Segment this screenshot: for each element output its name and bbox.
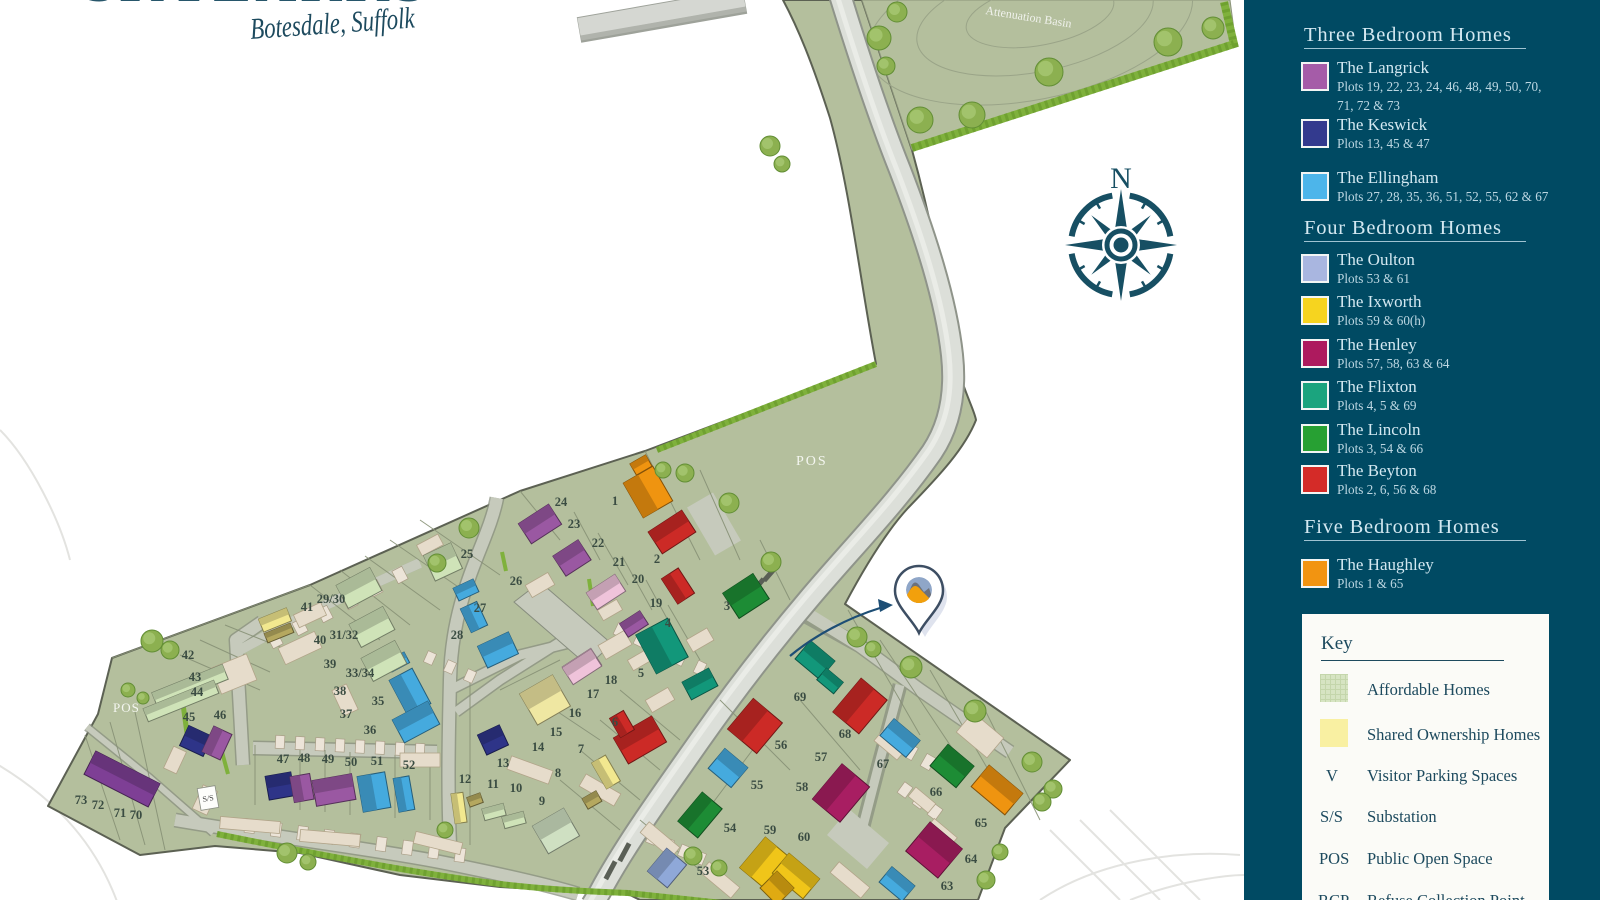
- svg-text:16: 16: [569, 706, 582, 720]
- svg-text:64: 64: [965, 852, 978, 866]
- svg-text:33/34: 33/34: [346, 666, 375, 680]
- svg-text:45: 45: [183, 710, 196, 724]
- svg-text:60: 60: [798, 830, 811, 844]
- svg-text:28: 28: [451, 628, 464, 642]
- svg-text:POS: POS: [113, 700, 140, 715]
- svg-text:18: 18: [605, 673, 618, 687]
- svg-text:21: 21: [613, 555, 626, 569]
- svg-text:48: 48: [298, 751, 311, 765]
- svg-text:46: 46: [214, 708, 227, 722]
- svg-text:1: 1: [612, 494, 618, 508]
- svg-text:23: 23: [568, 517, 581, 531]
- svg-text:44: 44: [191, 685, 204, 699]
- svg-text:22: 22: [592, 536, 605, 550]
- svg-text:36: 36: [364, 723, 377, 737]
- svg-text:S/S: S/S: [202, 793, 215, 804]
- svg-text:29/30: 29/30: [317, 592, 345, 606]
- svg-text:38: 38: [334, 684, 347, 698]
- svg-text:17: 17: [587, 687, 600, 701]
- svg-text:3: 3: [724, 599, 730, 613]
- svg-text:57: 57: [815, 750, 828, 764]
- svg-text:12: 12: [459, 772, 472, 786]
- svg-text:24: 24: [555, 495, 568, 509]
- svg-text:42: 42: [182, 648, 195, 662]
- svg-text:56: 56: [775, 738, 788, 752]
- svg-text:14: 14: [532, 740, 545, 754]
- svg-text:25: 25: [461, 547, 474, 561]
- svg-text:58: 58: [796, 780, 809, 794]
- svg-text:47: 47: [277, 752, 290, 766]
- svg-text:31/32: 31/32: [330, 628, 358, 642]
- svg-text:53: 53: [697, 864, 710, 878]
- svg-text:40: 40: [314, 633, 327, 647]
- svg-text:6: 6: [612, 715, 618, 729]
- svg-text:19: 19: [650, 596, 663, 610]
- svg-text:59: 59: [764, 823, 777, 837]
- svg-text:54: 54: [724, 821, 737, 835]
- svg-text:65: 65: [975, 816, 988, 830]
- svg-text:67: 67: [877, 757, 890, 771]
- svg-text:2: 2: [654, 552, 660, 566]
- svg-text:70: 70: [130, 808, 143, 822]
- svg-text:66: 66: [930, 785, 943, 799]
- svg-text:52: 52: [403, 758, 416, 772]
- svg-text:9: 9: [539, 794, 545, 808]
- svg-text:43: 43: [189, 670, 202, 684]
- svg-text:63: 63: [941, 879, 954, 893]
- svg-text:73: 73: [75, 793, 88, 807]
- svg-text:37: 37: [340, 707, 353, 721]
- svg-text:41: 41: [301, 600, 314, 614]
- svg-text:8: 8: [555, 766, 561, 780]
- svg-text:26: 26: [510, 574, 523, 588]
- svg-text:15: 15: [550, 725, 563, 739]
- svg-text:4: 4: [665, 616, 672, 630]
- svg-text:20: 20: [632, 572, 645, 586]
- svg-text:5: 5: [638, 666, 644, 680]
- svg-text:27: 27: [474, 601, 487, 615]
- svg-text:35: 35: [372, 694, 385, 708]
- svg-text:49: 49: [322, 752, 335, 766]
- svg-text:POS: POS: [796, 454, 828, 469]
- svg-text:55: 55: [751, 778, 764, 792]
- svg-text:50: 50: [345, 755, 358, 769]
- svg-text:13: 13: [497, 756, 510, 770]
- svg-text:11: 11: [487, 777, 499, 791]
- svg-text:10: 10: [510, 781, 523, 795]
- svg-text:72: 72: [92, 798, 105, 812]
- svg-text:7: 7: [578, 742, 584, 756]
- svg-text:69: 69: [794, 690, 807, 704]
- svg-text:71: 71: [114, 806, 127, 820]
- svg-text:68: 68: [839, 727, 852, 741]
- svg-text:51: 51: [371, 754, 384, 768]
- svg-text:39: 39: [324, 657, 337, 671]
